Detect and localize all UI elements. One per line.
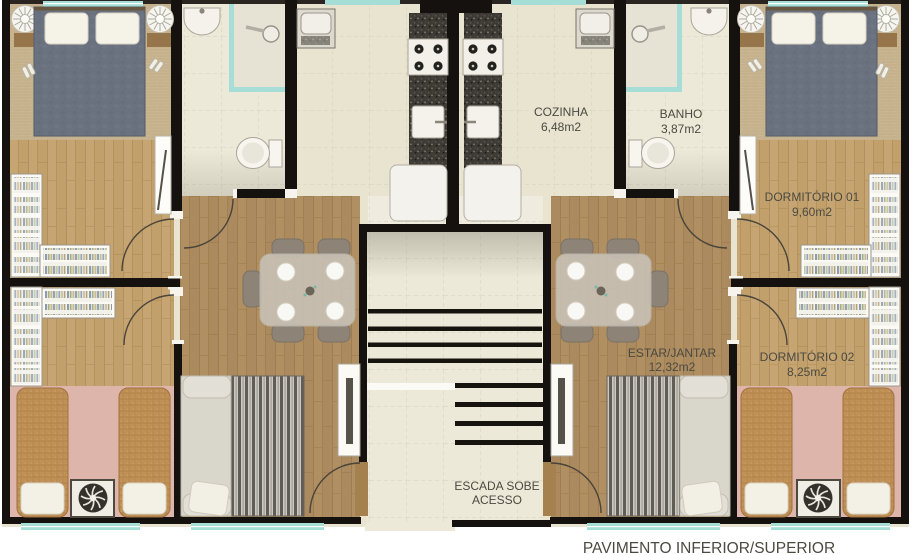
- svg-text:ESTAR/JANTAR: ESTAR/JANTAR: [628, 346, 717, 360]
- svg-text:COZINHA: COZINHA: [534, 105, 588, 119]
- svg-text:12,32m2: 12,32m2: [649, 360, 696, 374]
- svg-text:DORMITÓRIO 02: DORMITÓRIO 02: [760, 349, 855, 364]
- svg-text:BANHO: BANHO: [660, 107, 703, 121]
- svg-text:9,60m2: 9,60m2: [792, 205, 832, 219]
- svg-text:6,48m2: 6,48m2: [541, 120, 581, 134]
- svg-text:DORMITÓRIO 01: DORMITÓRIO 01: [765, 189, 860, 204]
- svg-text:ACESSO: ACESSO: [472, 493, 522, 507]
- svg-text:ESCADA SOBE: ESCADA SOBE: [454, 479, 539, 493]
- svg-text:PAVIMENTO INFERIOR/SUPERIOR: PAVIMENTO INFERIOR/SUPERIOR: [583, 540, 835, 555]
- svg-text:8,25m2: 8,25m2: [787, 365, 827, 379]
- svg-text:3,87m2: 3,87m2: [661, 122, 701, 136]
